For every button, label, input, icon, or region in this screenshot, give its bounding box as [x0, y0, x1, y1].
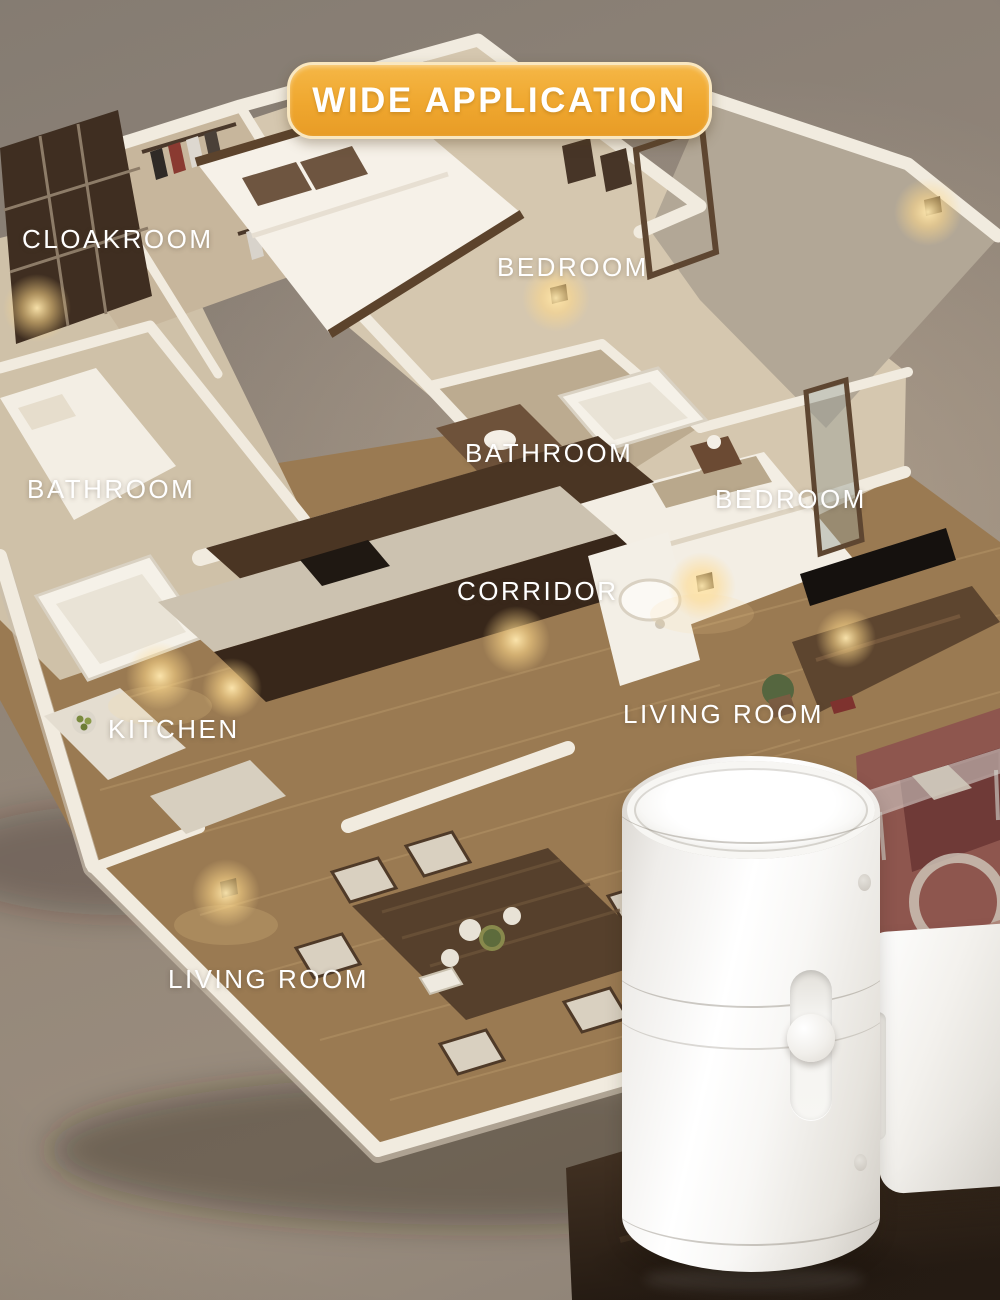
product-scene: WIDE APPLICATION CLOAKROOM BEDROOM BATHR…	[0, 0, 1000, 1300]
room-label-cloakroom: CLOAKROOM	[22, 224, 214, 255]
room-label-corridor: CORRIDOR	[457, 576, 619, 607]
room-label-bedroom-right: BEDROOM	[715, 484, 867, 515]
wide-application-badge: WIDE APPLICATION	[287, 62, 712, 139]
room-label-living-room-bottom: LIVING ROOM	[168, 964, 369, 995]
room-label-bedroom-top: BEDROOM	[497, 252, 649, 283]
badge-label: WIDE APPLICATION	[312, 81, 686, 121]
room-label-kitchen: KITCHEN	[108, 714, 240, 745]
floorplan-illustration	[0, 0, 1000, 1300]
room-label-bathroom-center: BATHROOM	[465, 438, 633, 469]
room-label-living-room-right: LIVING ROOM	[623, 699, 824, 730]
room-label-bathroom-left: BATHROOM	[27, 474, 195, 505]
